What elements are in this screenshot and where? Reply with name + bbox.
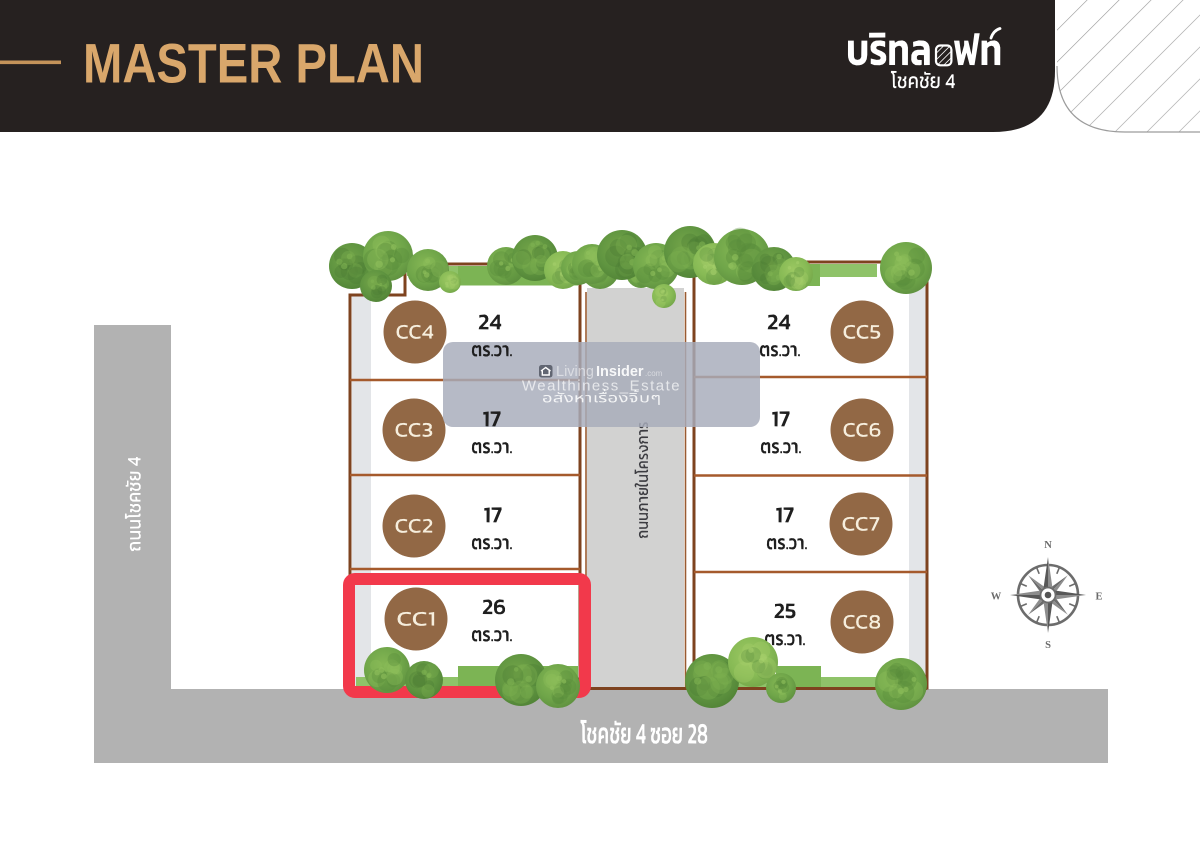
svg-text:N: N (1044, 540, 1052, 551)
svg-text:MASTER PLAN: MASTER PLAN (83, 33, 424, 95)
svg-text:S: S (1045, 640, 1051, 651)
svg-text:E: E (1095, 592, 1102, 603)
svg-text:Wealthiness_Estate: Wealthiness_Estate (522, 378, 681, 395)
svg-text:W: W (991, 592, 1002, 603)
